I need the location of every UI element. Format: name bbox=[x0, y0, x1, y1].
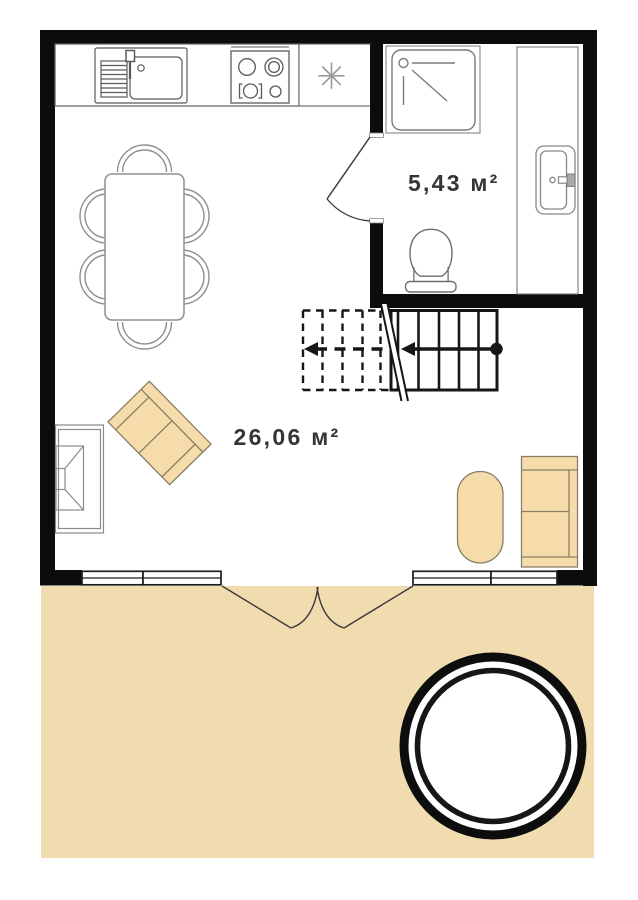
svg-text:26,06 м²: 26,06 м² bbox=[234, 424, 341, 450]
svg-text:5,43 м²: 5,43 м² bbox=[408, 170, 500, 196]
